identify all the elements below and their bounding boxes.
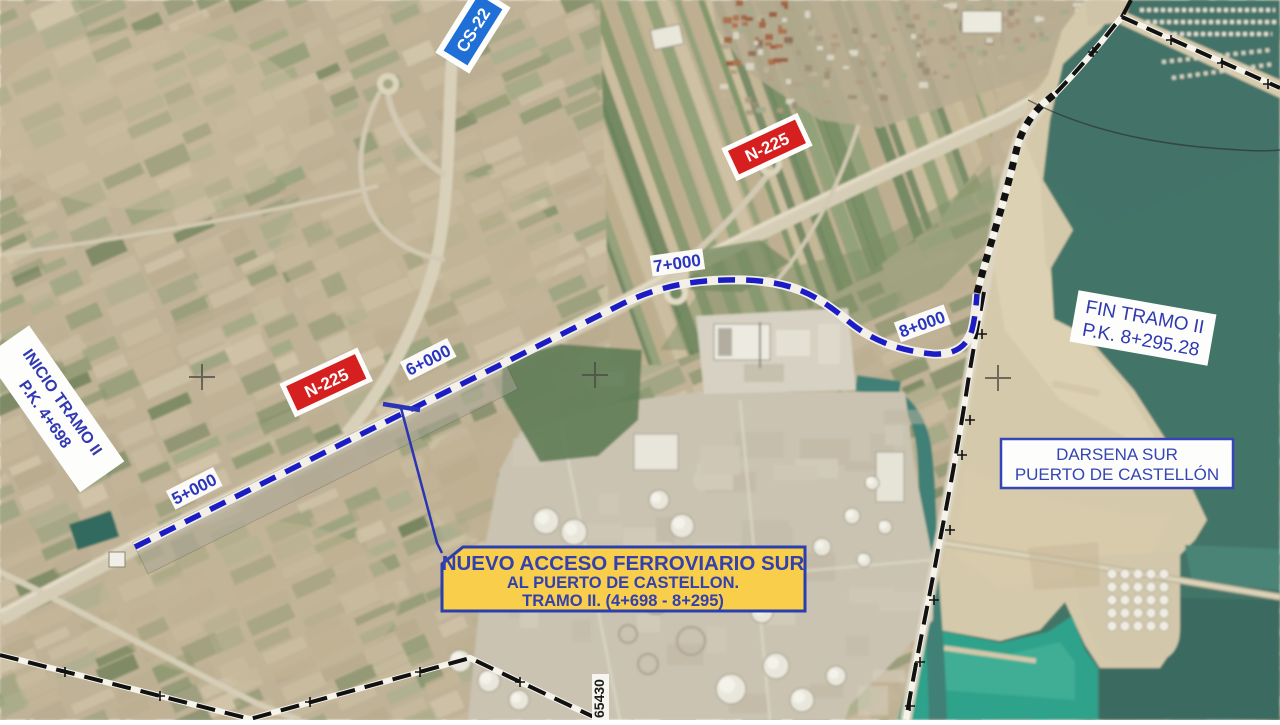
svg-text:NUEVO ACCESO FERROVIARIO SUR: NUEVO ACCESO FERROVIARIO SUR: [442, 552, 805, 575]
svg-text:DARSENA SUR: DARSENA SUR: [1056, 445, 1178, 464]
svg-text:AL PUERTO DE CASTELLON.: AL PUERTO DE CASTELLON.: [507, 574, 739, 592]
svg-text:PUERTO DE CASTELLÓN: PUERTO DE CASTELLÓN: [1015, 465, 1219, 484]
svg-text:65430: 65430: [591, 679, 607, 718]
svg-text:TRAMO II. (4+698 - 8+295): TRAMO II. (4+698 - 8+295): [522, 592, 724, 610]
